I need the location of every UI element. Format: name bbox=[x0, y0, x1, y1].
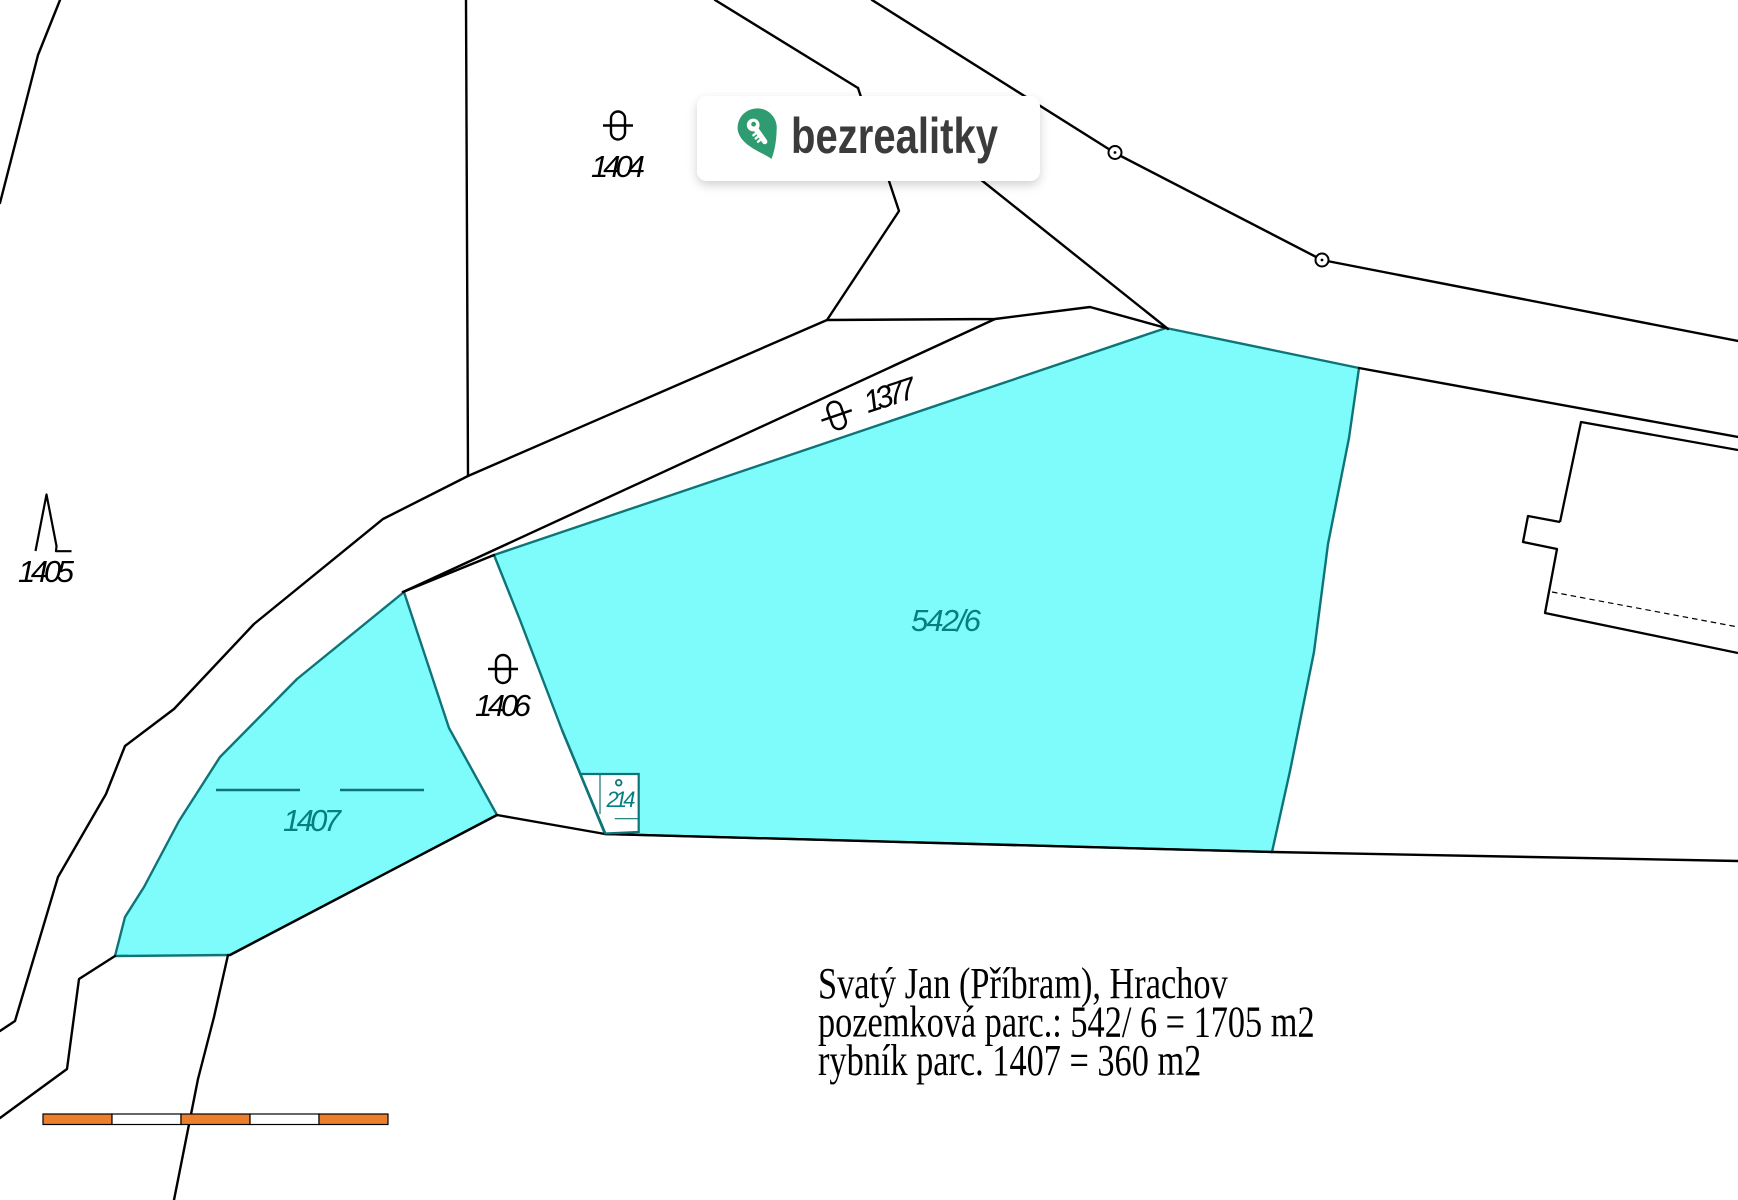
svg-text:1405: 1405 bbox=[18, 554, 75, 589]
svg-text:bezrealitky: bezrealitky bbox=[791, 108, 998, 164]
svg-text:214: 214 bbox=[606, 787, 636, 812]
svg-text:1406: 1406 bbox=[475, 688, 532, 723]
svg-text:rybník parc. 1407 = 360 m2: rybník parc. 1407 = 360 m2 bbox=[818, 1036, 1201, 1085]
svg-text:1404: 1404 bbox=[591, 149, 645, 184]
svg-text:1407: 1407 bbox=[283, 803, 343, 838]
svg-text:542/6: 542/6 bbox=[911, 603, 982, 638]
